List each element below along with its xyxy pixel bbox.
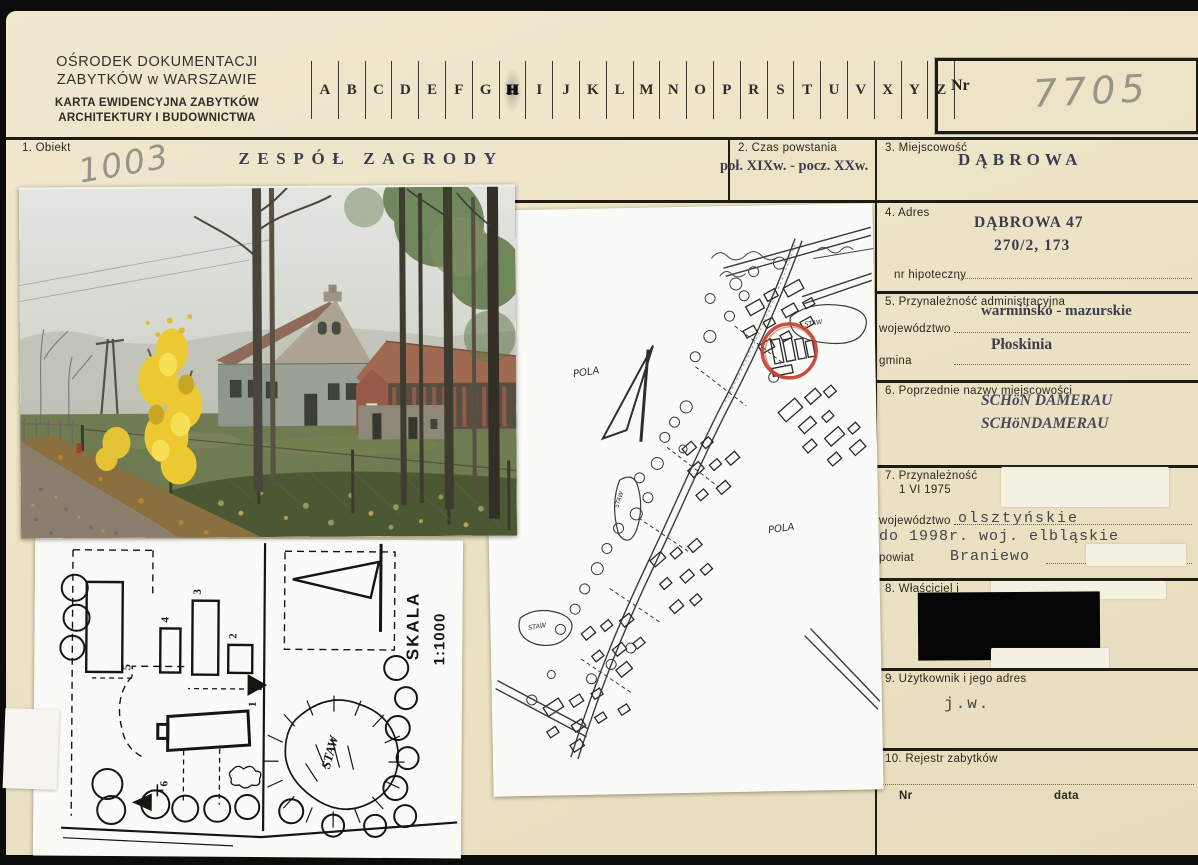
map-label-pola: POLA (768, 522, 796, 537)
map-label-staw: STAW (613, 490, 625, 509)
section7-date: 1 VI 1975 (899, 484, 951, 496)
index-letter: B (338, 61, 365, 119)
section4-label: 4. Adres (885, 207, 930, 219)
voivodeship-1975-dotted (954, 523, 1192, 525)
register-nr-label: Nr (899, 790, 912, 802)
voivodeship-1975-label: województwo (879, 515, 951, 527)
section2-label: 2. Czas powstania (738, 142, 837, 154)
whiteout-patch (991, 648, 1109, 670)
index-letter: E (418, 61, 445, 119)
map-label-staw: STAW (804, 318, 824, 329)
index-letter: M (633, 61, 660, 119)
alphabet-index: A B C D E F G H I J K L M N O P R S T U … (311, 61, 955, 119)
index-letter: J (552, 61, 579, 119)
address-line2: 270/2, 173 (994, 237, 1070, 255)
site-map-drawing: POLA POLA STAW STAW STAW (482, 203, 883, 796)
index-letter: F (445, 61, 472, 119)
plan-building-number: 3 (192, 589, 204, 595)
org-name-line2: ZABYTKÓW w WARSZAWIE (36, 71, 278, 89)
nr-handwritten-value: 7705 (1032, 66, 1151, 116)
plan-scale-label: SKALA (403, 592, 422, 661)
section9-label: 9. Użytkownik i jego adres (885, 673, 1026, 685)
user-value: j.w. (944, 695, 990, 713)
farmstead-plan: 5 4 3 2 1 6 STAW SKALA 1:1000 (33, 538, 463, 859)
index-letter: O (686, 61, 713, 119)
map-label-staw: STAW (528, 621, 548, 632)
gmina-value: Płoskinia (991, 336, 1052, 354)
locality-name: DĄBROWA (958, 150, 1083, 170)
whiteout-patch (1001, 467, 1169, 507)
village-site-map: POLA POLA STAW STAW STAW (482, 203, 883, 796)
card-number-box: Nr 7705 (935, 58, 1198, 134)
mortgage-number-label: nr hipoteczny (894, 269, 966, 281)
mortgage-dotted-line (958, 277, 1192, 279)
section10-label: 10. Rejestr zabytków (885, 753, 998, 765)
index-letter: C (365, 61, 392, 119)
card-type-line2: ARCHITEKTURY I BUDOWNICTWA (36, 111, 278, 125)
plan-building-number: 2 (227, 633, 239, 639)
card-type-line1: KARTA EWIDENCYJNA ZABYTKÓW (36, 96, 278, 110)
scanned-record-card: OŚRODEK DOKUMENTACJI ZABYTKÓW w WARSZAWI… (0, 0, 1198, 865)
rule-s9 (875, 668, 1198, 671)
rule-under-row1 (511, 200, 1198, 203)
farmstead-photo (19, 184, 517, 538)
header-rule (6, 137, 1198, 140)
index-letter: T (793, 61, 820, 119)
index-letter: U (820, 61, 847, 119)
index-letter: L (606, 61, 633, 119)
gmina-label: gmina (879, 355, 912, 367)
rule-s6 (875, 380, 1198, 383)
object-title: ZESPÓŁ ZAGRODY (156, 149, 586, 169)
map-label-pola: POLA (572, 365, 600, 380)
plan-scale-value: 1:1000 (431, 613, 448, 666)
former-name-2: SCHöNDAMERAU (981, 415, 1108, 433)
index-letter: A (311, 61, 338, 119)
powiat-value: Braniewo (950, 548, 1030, 565)
rule-s5 (875, 291, 1198, 294)
index-letter: G (472, 61, 499, 119)
plan-label-staw: STAW (318, 733, 342, 771)
section1-label: 1. Obiekt (22, 142, 71, 154)
plan-building-number: 6 (158, 780, 170, 786)
index-letter: Y (901, 61, 928, 119)
index-letter: D (391, 61, 418, 119)
org-name-line1: OŚRODEK DOKUMENTACJI (36, 53, 278, 71)
index-letter: I (525, 61, 552, 119)
card-background: OŚRODEK DOKUMENTACJI ZABYTKÓW w WARSZAWI… (6, 11, 1198, 855)
plan-building-number: 4 (160, 616, 172, 622)
issuing-office: OŚRODEK DOKUMENTACJI ZABYTKÓW w WARSZAWI… (36, 53, 278, 125)
construction-period: poł. XIXw. - pocz. XXw. (720, 158, 868, 175)
index-letter: X (874, 61, 901, 119)
farmstead-plan-drawing: 5 4 3 2 1 6 STAW SKALA 1:1000 (33, 538, 463, 859)
voivodeship-label: województwo (879, 323, 951, 335)
voivodeship-value: warmińsko - mazurskie (981, 303, 1132, 320)
note-1998: do 1998r. woj. elbląskie (879, 528, 1119, 545)
register-data-label: data (1054, 790, 1079, 802)
plan-building-number: 1 (247, 701, 259, 707)
rule-s10 (875, 748, 1198, 751)
index-letter: R (740, 61, 767, 119)
index-letter: P (713, 61, 740, 119)
index-letter: V (847, 61, 874, 119)
index-letter: S (767, 61, 794, 119)
register-dotted (878, 783, 1194, 785)
voivodeship-dotted (954, 331, 1190, 333)
plan-building-number: 5 (119, 664, 133, 670)
index-letter: N (659, 61, 686, 119)
tape-patch (3, 708, 60, 790)
former-name-1: SCHöN DAMERAU (981, 392, 1112, 410)
photo-scene (19, 186, 517, 538)
index-letter: K (579, 61, 606, 119)
whiteout-patch (1086, 544, 1186, 566)
address-line1: DĄBROWA 47 (974, 214, 1083, 232)
index-letter-marked: H (499, 61, 526, 119)
nr-label: Nr (951, 77, 970, 95)
section7-label: 7. Przynależność (885, 470, 977, 482)
section3-label: 3. Miejscowość (885, 142, 967, 154)
gmina-dotted (954, 363, 1190, 365)
powiat-label: powiat (879, 552, 914, 564)
